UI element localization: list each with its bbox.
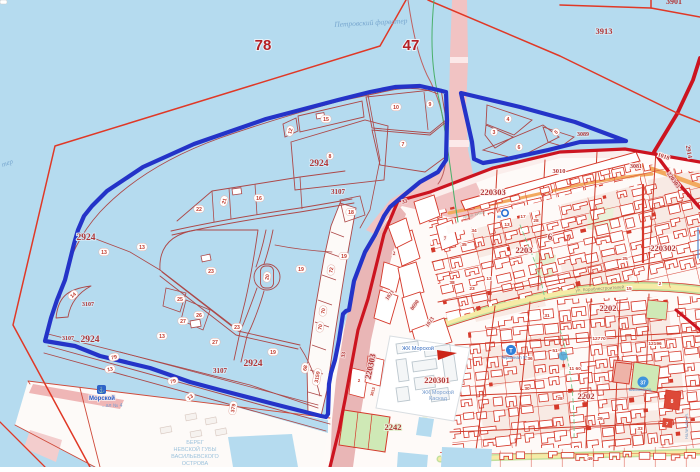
svg-text:Терминал 5*: Терминал 5*: [501, 355, 527, 360]
svg-text:3913: 3913: [596, 26, 613, 36]
svg-text:...ал № 4: ...ал № 4: [102, 403, 123, 409]
svg-text:220301: 220301: [424, 375, 450, 385]
svg-text:70: 70: [320, 308, 327, 315]
svg-text:13: 13: [486, 276, 492, 282]
svg-text:220302: 220302: [650, 243, 676, 253]
svg-text:3089: 3089: [577, 132, 589, 138]
svg-text:49: 49: [587, 456, 593, 462]
svg-text:Каскад: Каскад: [429, 396, 448, 402]
svg-text:23: 23: [469, 286, 475, 292]
svg-text:27: 27: [212, 340, 218, 346]
svg-text:47: 47: [403, 37, 420, 54]
svg-text:30: 30: [524, 386, 530, 392]
svg-text:Наличная ул.: Наличная ул.: [684, 413, 689, 439]
svg-text:ВАСИЛЬЕВСКОГО: ВАСИЛЬЕВСКОГО: [171, 454, 219, 460]
svg-text:13: 13: [139, 245, 145, 251]
svg-text:9: 9: [429, 102, 432, 108]
svg-text:13: 13: [159, 334, 165, 340]
svg-text:26: 26: [196, 313, 202, 319]
svg-text:29: 29: [597, 416, 603, 422]
svg-text:35: 35: [461, 242, 467, 248]
svg-text:23: 23: [234, 325, 240, 331]
svg-text:ЖК Морской: ЖК Морской: [402, 345, 434, 352]
svg-text:2924: 2924: [77, 233, 96, 243]
svg-text:Калининец: Калининец: [629, 387, 652, 392]
svg-text:72: 72: [328, 267, 335, 274]
svg-text:25: 25: [177, 297, 183, 303]
svg-text:ЖК Морской: ЖК Морской: [422, 389, 454, 396]
svg-text:10: 10: [393, 105, 399, 111]
svg-text:11 60: 11 60: [569, 366, 581, 372]
svg-text:3081: 3081: [630, 164, 642, 170]
svg-text:Т: Т: [509, 349, 513, 355]
svg-text:15: 15: [323, 117, 329, 123]
svg-text:6: 6: [548, 232, 553, 242]
svg-text:23: 23: [208, 269, 214, 275]
svg-text:17: 17: [520, 214, 526, 220]
svg-text:2: 2: [393, 251, 396, 257]
svg-text:16: 16: [256, 196, 262, 202]
svg-text:68: 68: [302, 365, 309, 372]
svg-text:12196: 12196: [648, 341, 662, 347]
svg-text:3901: 3901: [666, 0, 682, 6]
svg-text:31: 31: [544, 313, 550, 319]
svg-text:34: 34: [471, 228, 477, 234]
svg-text:2924: 2924: [244, 359, 263, 369]
svg-text:8: 8: [671, 399, 674, 405]
svg-text:20: 20: [264, 274, 271, 281]
svg-text:12770: 12770: [592, 336, 606, 342]
svg-text:25: 25: [622, 256, 628, 262]
svg-text:6: 6: [518, 145, 521, 151]
svg-text:БЕРЕГ: БЕРЕГ: [186, 440, 204, 446]
svg-text:37: 37: [640, 381, 646, 387]
svg-text:2242: 2242: [385, 422, 402, 432]
svg-text:Морской: Морской: [89, 395, 115, 402]
svg-text:36: 36: [527, 356, 533, 362]
svg-text:28: 28: [557, 396, 563, 402]
svg-text:78: 78: [255, 37, 272, 54]
svg-text:19: 19: [341, 254, 347, 260]
svg-text:4: 4: [507, 117, 510, 123]
svg-text:⚓: ⚓: [98, 386, 105, 394]
svg-text:2203: 2203: [516, 245, 533, 255]
svg-text:3107: 3107: [82, 302, 94, 308]
svg-text:3107: 3107: [213, 367, 228, 375]
svg-text:8: 8: [329, 154, 332, 160]
svg-text:2924: 2924: [310, 159, 329, 169]
svg-text:2: 2: [659, 281, 662, 287]
svg-text:13: 13: [504, 222, 510, 228]
svg-text:70: 70: [317, 324, 324, 331]
svg-text:13: 13: [101, 250, 107, 256]
svg-text:2924: 2924: [81, 335, 100, 345]
svg-text:28: 28: [533, 218, 539, 224]
svg-text:38: 38: [449, 280, 455, 286]
svg-text:18: 18: [348, 210, 354, 216]
svg-text:7: 7: [402, 142, 405, 148]
svg-text:51: 51: [552, 348, 558, 354]
svg-text:22: 22: [196, 207, 202, 213]
svg-text:3: 3: [493, 130, 496, 136]
svg-text:27: 27: [180, 319, 186, 325]
svg-text:НЕВСКОЙ ГУБЫ: НЕВСКОЙ ГУБЫ: [174, 445, 217, 453]
svg-text:3010: 3010: [553, 168, 566, 175]
svg-text:19: 19: [270, 350, 276, 356]
svg-text:19: 19: [298, 267, 304, 273]
svg-text:15: 15: [626, 286, 632, 292]
svg-text:33: 33: [637, 426, 643, 432]
svg-text:2202: 2202: [600, 303, 617, 313]
svg-text:220303: 220303: [480, 187, 506, 197]
svg-text:2202: 2202: [578, 391, 595, 401]
svg-text:3107: 3107: [331, 188, 346, 196]
svg-text:3107: 3107: [62, 336, 74, 342]
svg-text:ОСТРОВА: ОСТРОВА: [182, 461, 209, 467]
